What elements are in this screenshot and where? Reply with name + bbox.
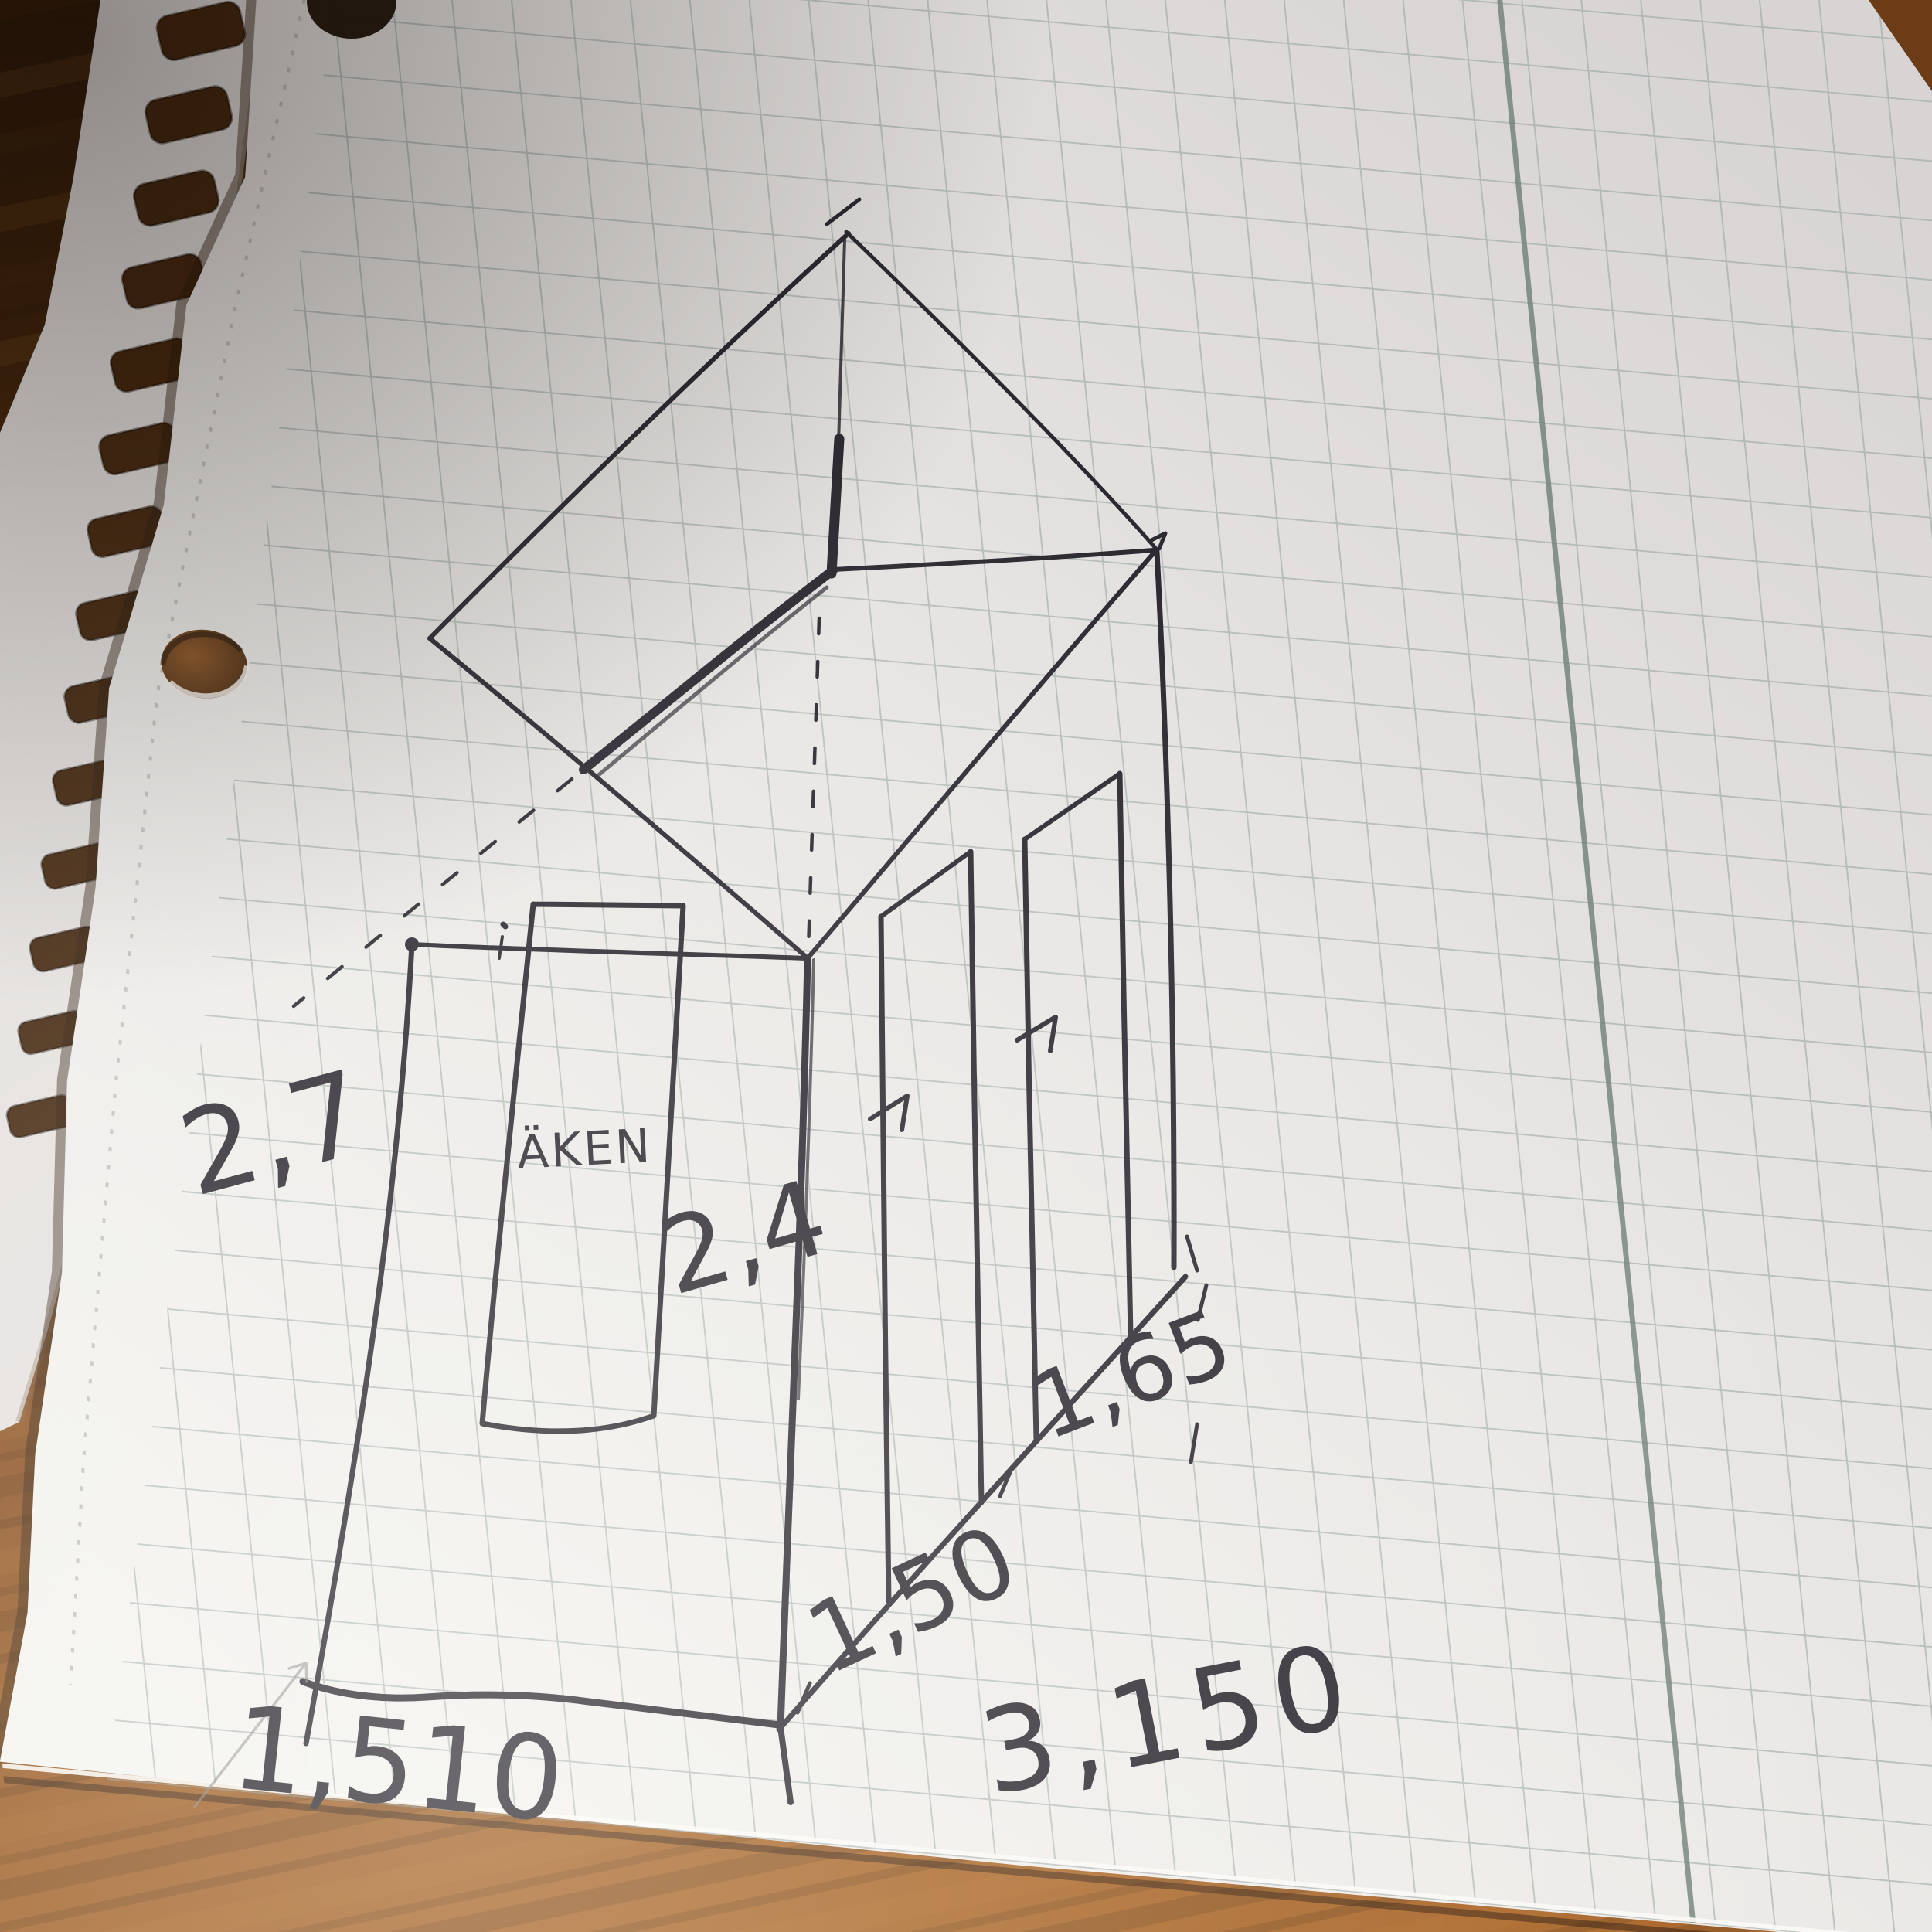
shadow-overlay — [0, 0, 1932, 1932]
photo-of-sketch: ÄKEN 2,7 2,4 1,510 1,50 1,65 3,150 — [0, 0, 1932, 1932]
